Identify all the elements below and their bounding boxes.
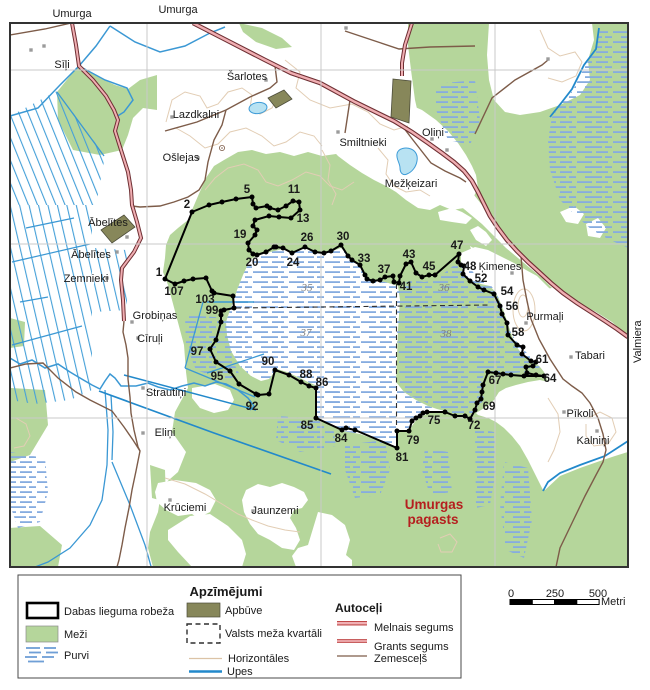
svg-text:24: 24 [287, 257, 300, 269]
svg-text:1: 1 [156, 267, 163, 279]
svg-text:Lazdkalni: Lazdkalni [173, 109, 219, 121]
svg-text:90: 90 [262, 356, 275, 368]
svg-text:75: 75 [428, 415, 441, 427]
svg-text:56: 56 [506, 301, 519, 313]
svg-text:37: 37 [300, 327, 313, 339]
svg-text:Jaunzemi: Jaunzemi [251, 505, 298, 517]
svg-text:38: 38 [440, 328, 453, 340]
svg-text:58: 58 [512, 327, 525, 339]
svg-text:72: 72 [468, 420, 481, 432]
svg-text:Umurga: Umurga [52, 8, 92, 20]
svg-text:97: 97 [191, 346, 204, 358]
svg-text:Upes: Upes [227, 666, 253, 678]
svg-text:26: 26 [301, 232, 314, 244]
svg-text:Umurga: Umurga [158, 4, 198, 16]
svg-text:5: 5 [244, 184, 251, 196]
svg-text:Purmaļi: Purmaļi [526, 311, 563, 323]
svg-text:43: 43 [403, 249, 416, 261]
svg-text:103: 103 [195, 294, 214, 306]
svg-text:Zemesceļš: Zemesceļš [374, 653, 428, 665]
svg-text:Dabas lieguma robeža: Dabas lieguma robeža [64, 606, 175, 618]
svg-text:Zemnieki: Zemnieki [64, 273, 109, 285]
svg-text:11: 11 [288, 184, 301, 196]
svg-text:54: 54 [501, 286, 514, 298]
svg-text:Valsts meža kvartāli: Valsts meža kvartāli [225, 628, 322, 640]
svg-text:84: 84 [335, 433, 348, 445]
svg-text:Grobiņas: Grobiņas [133, 310, 178, 322]
svg-text:Ošlejas: Ošlejas [163, 152, 200, 164]
svg-text:Ķimenes: Ķimenes [479, 261, 522, 273]
svg-text:45: 45 [423, 261, 436, 273]
svg-text:Purvi: Purvi [64, 650, 89, 662]
svg-text:61: 61 [536, 354, 549, 366]
svg-text:2: 2 [184, 199, 190, 211]
svg-text:95: 95 [211, 371, 224, 383]
svg-text:0: 0 [508, 588, 514, 600]
svg-text:Metri: Metri [601, 596, 625, 608]
svg-text:Šarlotes: Šarlotes [227, 70, 268, 83]
svg-text:Ābelītes: Ābelītes [88, 217, 128, 229]
svg-text:30: 30 [337, 231, 350, 243]
svg-text:85: 85 [301, 420, 314, 432]
svg-text:Kalniņi: Kalniņi [576, 435, 609, 447]
svg-text:41: 41 [400, 281, 413, 293]
svg-text:79: 79 [407, 435, 420, 447]
svg-text:99: 99 [206, 305, 219, 317]
svg-text:37: 37 [378, 264, 391, 276]
svg-text:Grants segums: Grants segums [374, 641, 449, 653]
svg-text:35: 35 [301, 282, 314, 294]
svg-text:Horizontāles: Horizontāles [228, 653, 290, 665]
svg-text:107: 107 [164, 286, 183, 298]
svg-text:pagasts: pagasts [407, 512, 458, 527]
svg-text:52: 52 [475, 273, 488, 285]
svg-text:Autoceļi: Autoceļi [335, 601, 382, 615]
svg-text:48: 48 [464, 261, 477, 273]
svg-text:Meži: Meži [64, 629, 87, 641]
svg-text:Pīkoli: Pīkoli [567, 408, 594, 420]
svg-text:64: 64 [544, 373, 557, 385]
svg-text:19: 19 [234, 229, 247, 241]
svg-text:Oliņi: Oliņi [422, 127, 444, 139]
svg-text:67: 67 [489, 375, 502, 387]
svg-text:Umurgas: Umurgas [405, 497, 464, 512]
svg-text:Eliņi: Eliņi [155, 427, 176, 439]
svg-text:13: 13 [297, 213, 310, 225]
svg-text:86: 86 [316, 377, 329, 389]
svg-text:47: 47 [451, 240, 464, 252]
svg-text:Strautiņi: Strautiņi [146, 387, 186, 399]
svg-text:20: 20 [246, 257, 259, 269]
svg-text:Apbūve: Apbūve [225, 605, 262, 617]
svg-text:Melnais segums: Melnais segums [374, 622, 454, 634]
svg-text:Krūciemi: Krūciemi [164, 502, 207, 514]
svg-text:81: 81 [396, 452, 409, 464]
svg-text:Tabari: Tabari [575, 350, 605, 362]
svg-text:33: 33 [358, 253, 371, 265]
svg-text:Cīruļi: Cīruļi [137, 333, 163, 345]
svg-text:92: 92 [246, 401, 259, 413]
svg-text:Apzīmējumi: Apzīmējumi [190, 584, 263, 599]
svg-text:Ābelītes: Ābelītes [71, 249, 111, 261]
svg-text:Smiltnieki: Smiltnieki [339, 137, 386, 149]
svg-text:88: 88 [300, 369, 313, 381]
svg-text:Sīļi: Sīļi [54, 59, 69, 71]
svg-text:69: 69 [483, 401, 496, 413]
svg-text:250: 250 [546, 588, 564, 600]
svg-text:36: 36 [438, 282, 451, 294]
svg-text:Mežķeizari: Mežķeizari [385, 178, 438, 190]
svg-text:Valmiera: Valmiera [632, 320, 644, 363]
